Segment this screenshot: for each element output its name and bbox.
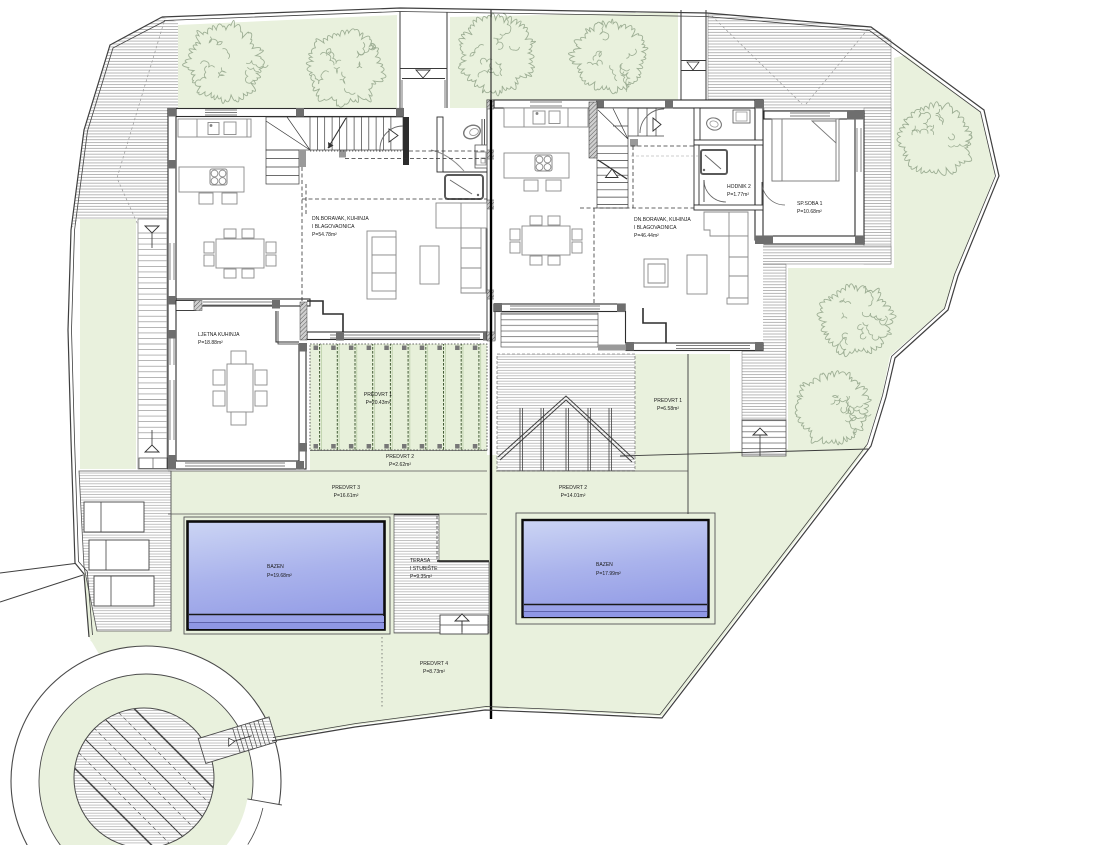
svg-text:PREDVRT 1: PREDVRT 1 (364, 392, 392, 398)
svg-text:PREDVRT 3: PREDVRT 3 (332, 485, 360, 491)
svg-text:HODNIK 2: HODNIK 2 (727, 184, 751, 190)
svg-text:DN.BORAVAK, KUHINJA: DN.BORAVAK, KUHINJA (312, 216, 369, 222)
svg-text:PREDVRT 4: PREDVRT 4 (420, 661, 448, 667)
svg-text:BAZEN: BAZEN (267, 564, 284, 570)
svg-text:P=8.73m²: P=8.73m² (423, 669, 445, 675)
svg-text:PREDVRT 1: PREDVRT 1 (654, 398, 682, 404)
svg-text:I BLAGOVAONICA: I BLAGOVAONICA (312, 224, 355, 230)
svg-text:TERASA: TERASA (410, 558, 431, 564)
svg-text:PREDVRT 2: PREDVRT 2 (559, 485, 587, 491)
svg-text:I STUBIŠTE: I STUBIŠTE (410, 565, 438, 572)
svg-text:P=9.35m²: P=9.35m² (410, 574, 432, 580)
svg-text:P=16.61m²: P=16.61m² (334, 493, 359, 499)
svg-text:P=1.77m²: P=1.77m² (727, 192, 749, 198)
svg-text:P=2.62m²: P=2.62m² (389, 462, 411, 468)
svg-text:LJETNA KUHINJA: LJETNA KUHINJA (198, 332, 240, 338)
svg-text:BAZEN: BAZEN (596, 562, 613, 568)
svg-text:I BLAGOVAONICA: I BLAGOVAONICA (634, 225, 677, 231)
svg-text:P=46.44m²: P=46.44m² (634, 233, 659, 239)
svg-text:P=10.68m²: P=10.68m² (797, 209, 822, 215)
svg-text:P=54.78m²: P=54.78m² (312, 232, 337, 238)
svg-text:P=20.43m²: P=20.43m² (366, 400, 391, 406)
svg-text:P=14.01m²: P=14.01m² (561, 493, 586, 499)
svg-text:SP.SOBA 1: SP.SOBA 1 (797, 201, 823, 207)
svg-text:P=19.68m²: P=19.68m² (267, 573, 292, 579)
svg-text:DN.BORAVAK, KUHINJA: DN.BORAVAK, KUHINJA (634, 217, 691, 223)
svg-text:PREDVRT 2: PREDVRT 2 (386, 454, 414, 460)
svg-text:P=6.58m²: P=6.58m² (657, 406, 679, 412)
svg-text:P=18.88m²: P=18.88m² (198, 340, 223, 346)
svg-text:P=17.99m²: P=17.99m² (596, 571, 621, 577)
